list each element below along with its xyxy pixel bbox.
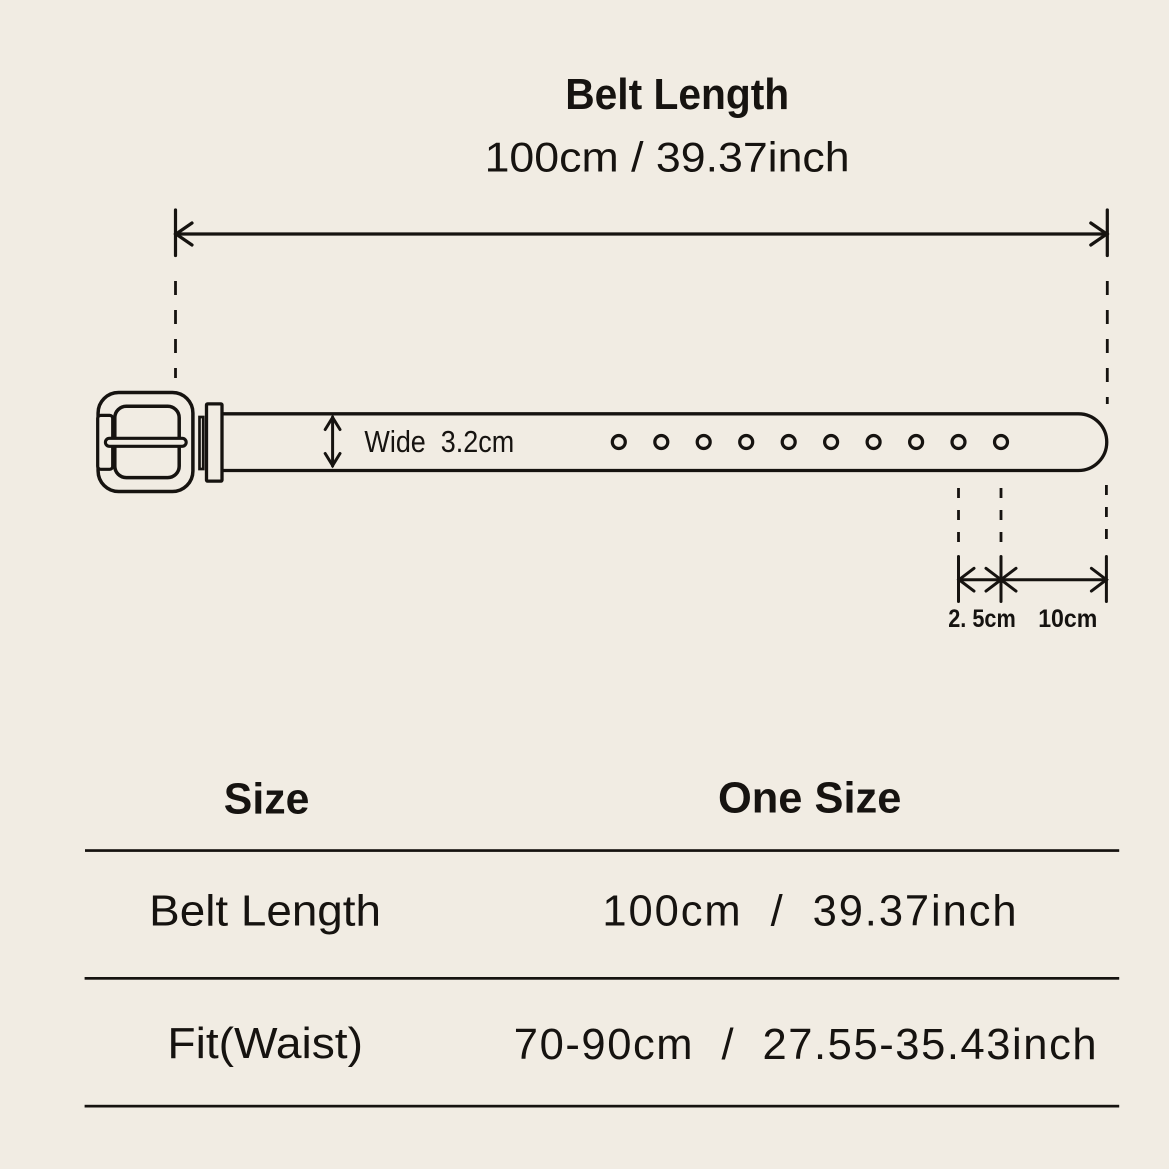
svg-text:100cm / 39.37inch: 100cm / 39.37inch xyxy=(485,134,850,181)
svg-text:10cm: 10cm xyxy=(1038,605,1097,633)
svg-text:100cm / 39.37inch: 100cm / 39.37inch xyxy=(602,888,1016,936)
svg-text:70-90cm / 27.55-35.43inch: 70-90cm / 27.55-35.43inch xyxy=(514,1021,1097,1069)
svg-text:Fit(Waist): Fit(Waist) xyxy=(167,1020,363,1068)
svg-text:2. 5cm: 2. 5cm xyxy=(948,605,1016,633)
svg-text:Belt Length: Belt Length xyxy=(565,70,789,119)
svg-text:Size: Size xyxy=(224,775,310,823)
svg-text:Wide 3.2cm: Wide 3.2cm xyxy=(364,424,514,459)
svg-text:One Size: One Size xyxy=(718,774,901,822)
svg-text:Belt Length: Belt Length xyxy=(149,888,381,936)
